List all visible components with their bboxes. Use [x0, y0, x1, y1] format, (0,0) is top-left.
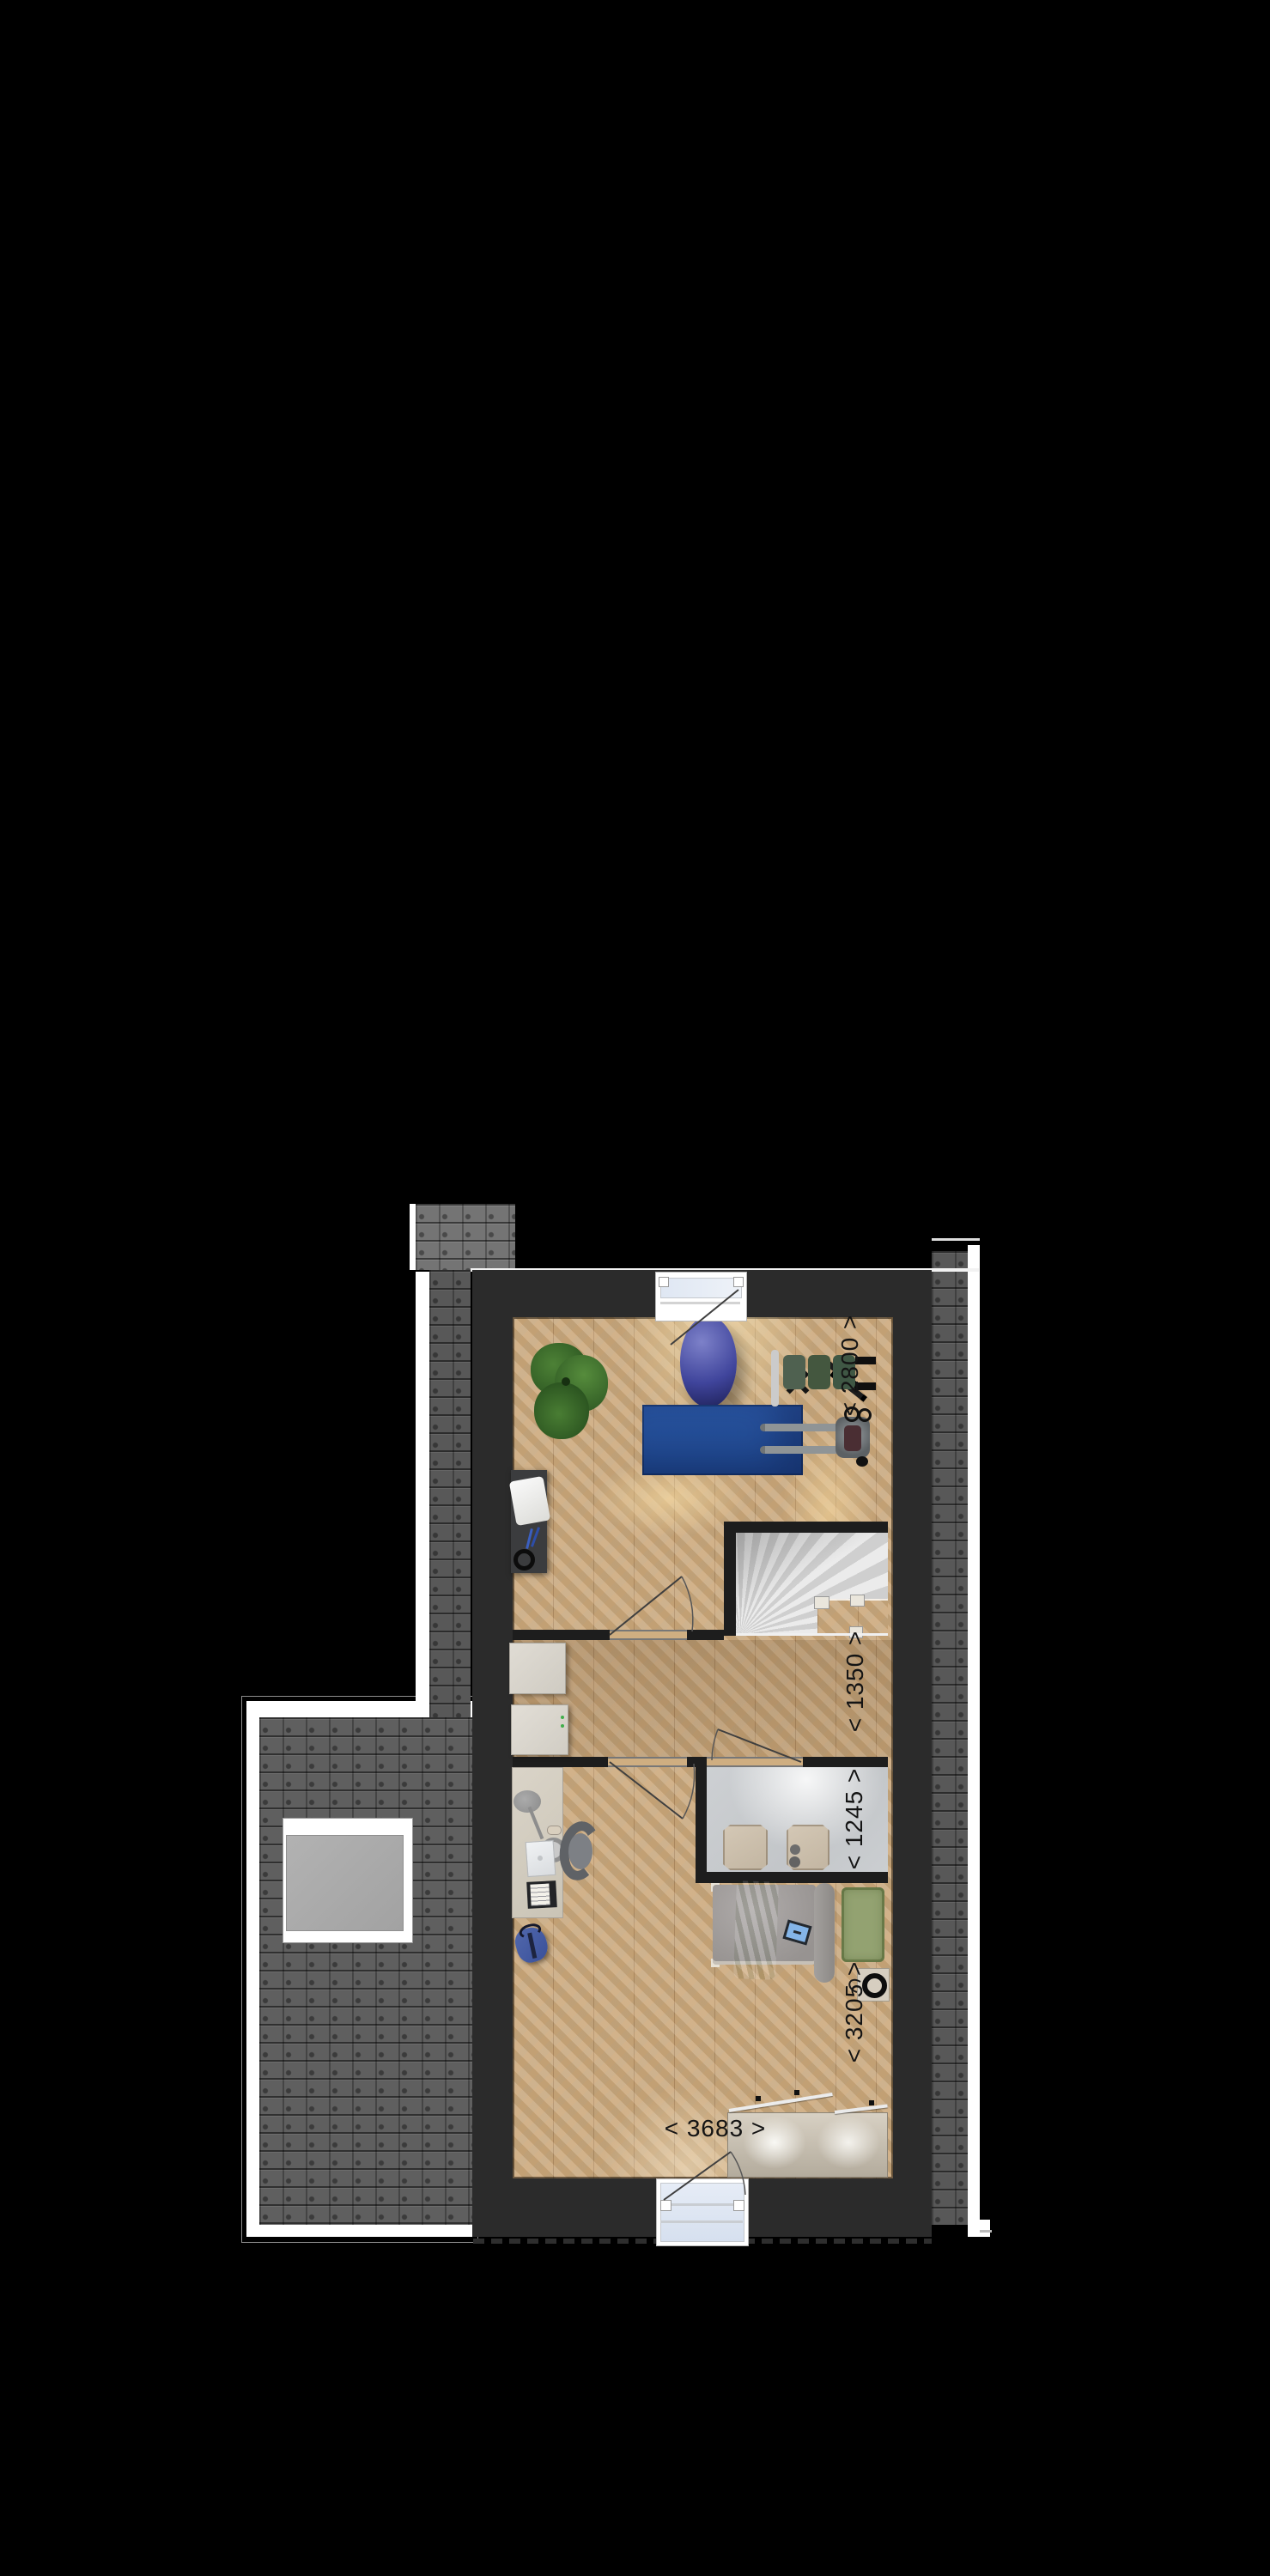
gym-window [655, 1272, 747, 1321]
bathroom-sink-left [723, 1825, 768, 1870]
wall-landing-bedroom-left [513, 1757, 608, 1767]
bench-pad-2 [808, 1355, 830, 1389]
bathroom-door-threshold [707, 1757, 803, 1767]
notebook-pages [530, 1884, 550, 1906]
chair-seat [568, 1833, 592, 1869]
wall-bathroom-top-right [803, 1757, 888, 1767]
gym-window-hinge-right [733, 1277, 744, 1287]
bike-seat [844, 1425, 861, 1451]
gym-side-table [511, 1470, 547, 1573]
floor-plan-canvas: { "dimension_labels": { "gym_width": "< … [0, 0, 1270, 2576]
bedroom-window-rail-2 [660, 2221, 743, 2223]
wardrobe-hinge-4 [869, 2100, 874, 2105]
bed [711, 1883, 836, 1983]
laptop [526, 1840, 556, 1877]
gym-window-hinge-left [659, 1277, 669, 1287]
laptop-logo [538, 1856, 543, 1861]
white-cloth [509, 1476, 550, 1526]
gym-window-glass [660, 1278, 742, 1298]
bike-arm-1 [760, 1424, 844, 1431]
wall-stair-left [724, 1522, 736, 1636]
wall-bathroom-left [696, 1767, 707, 1883]
roof-right-ridge-line [932, 1238, 980, 1241]
wall-gym-landing-right [687, 1630, 724, 1640]
bedroom-window-hinge-right [733, 2200, 744, 2211]
gym-window-rail [660, 1302, 740, 1304]
dimension-landing-depth: < 1350 > [842, 1631, 869, 1733]
faucet-knob-2 [789, 1856, 800, 1868]
faucet-knob-1 [790, 1844, 800, 1855]
exercise-ball [680, 1316, 737, 1407]
dormer-tiles [416, 1204, 515, 1270]
bedroom-window-hinge-left [660, 2200, 671, 2211]
washing-machine [509, 1643, 566, 1694]
wardrobe-light-2 [817, 2116, 880, 2169]
stair-post-1 [814, 1596, 829, 1609]
wardrobe-hinge-2 [794, 2090, 799, 2095]
plant-center [562, 1377, 570, 1386]
plant-leaf-3 [534, 1382, 589, 1439]
dimension-bathroom-depth: < 1245 > [841, 1768, 868, 1870]
gym-door-threshold [610, 1630, 687, 1640]
dimension-gym-width: < 2800 > [836, 1315, 864, 1417]
dryer-led-1 [561, 1716, 564, 1719]
roof-strip-right-tiles [932, 1251, 968, 2225]
roof-right-corner [968, 2220, 990, 2237]
desk-lamp-head [513, 1790, 541, 1813]
bedroom-door-threshold [608, 1757, 687, 1767]
bedroom-window-rail-1 [660, 2203, 743, 2206]
bed-blanket-green [733, 1880, 779, 1980]
skylight-glass [286, 1835, 404, 1931]
bike-pedal [856, 1456, 868, 1467]
roof-strip-right-trim [968, 1245, 980, 2237]
roof-right-tick [980, 2230, 992, 2233]
wall-landing-bedroom-mid [687, 1757, 707, 1767]
dryer-machine [511, 1704, 568, 1755]
dimension-bedroom-depth: < 3205 > [841, 1961, 868, 2063]
stair-post-2 [850, 1595, 865, 1607]
bike-arm-2 [760, 1446, 844, 1454]
headphones-gym [513, 1549, 535, 1571]
dimension-bedroom-width: < 3683 > [665, 2115, 767, 2142]
bedroom-window [656, 2178, 749, 2246]
bench-rail [771, 1350, 779, 1406]
backpack-stripe [527, 1933, 537, 1959]
bedroom-window-glass [660, 2183, 744, 2242]
dryer-led-2 [561, 1724, 564, 1728]
wall-gym-landing-left [513, 1630, 610, 1640]
bench-pad-1 [783, 1355, 805, 1389]
roof-left-tiles [259, 1717, 473, 2225]
wardrobe-hinge-1 [756, 2096, 761, 2101]
bedroom-rug-green [842, 1887, 884, 1962]
roof-strip-left-tiles [429, 1270, 471, 1717]
notebook [526, 1880, 557, 1909]
potted-plant [526, 1336, 611, 1444]
wall-stair-top [724, 1522, 888, 1533]
desk-chair [560, 1821, 601, 1882]
bed-duvet-roll [814, 1883, 835, 1983]
wall-bathroom-bottom [696, 1872, 888, 1883]
